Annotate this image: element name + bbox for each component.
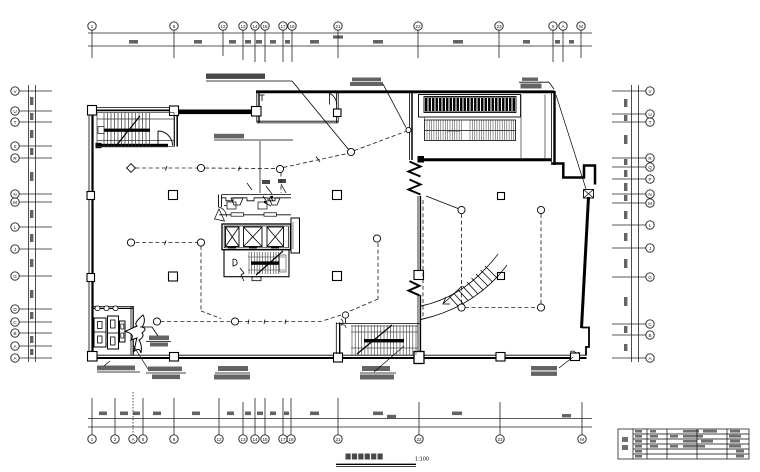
svg-text:A: A [13, 356, 17, 361]
svg-text:C: C [13, 320, 17, 325]
svg-text:6: 6 [173, 437, 176, 442]
svg-text:6: 6 [173, 24, 176, 29]
svg-text:V: V [648, 89, 652, 94]
svg-text:A: A [648, 356, 652, 361]
svg-text:M: M [13, 200, 17, 205]
svg-text:12: 12 [220, 24, 226, 29]
svg-text:T: T [14, 120, 17, 125]
svg-text:22: 22 [415, 24, 421, 29]
svg-text:U: U [648, 112, 651, 117]
svg-text:M: M [648, 201, 652, 206]
svg-text:M: M [580, 437, 584, 442]
svg-text:1:100: 1:100 [415, 457, 429, 463]
svg-text:5: 5 [142, 437, 145, 442]
svg-text:23: 23 [497, 437, 503, 442]
svg-text:15: 15 [262, 24, 268, 29]
svg-text:L: L [14, 225, 17, 230]
svg-text:2: 2 [114, 437, 117, 442]
svg-text:12: 12 [216, 437, 222, 442]
svg-text:B: B [13, 331, 16, 336]
svg-text:P: P [648, 177, 651, 182]
svg-text:21: 21 [335, 24, 341, 29]
svg-text:J: J [649, 246, 651, 251]
svg-text:R: R [13, 156, 17, 161]
svg-text:13: 13 [240, 437, 246, 442]
svg-text:1: 1 [91, 24, 94, 29]
svg-text:Q: Q [648, 165, 652, 170]
svg-text:A: A [13, 344, 17, 349]
svg-text:R: R [648, 156, 652, 161]
svg-text:17: 17 [280, 24, 286, 29]
svg-text:23: 23 [496, 24, 502, 29]
svg-text:22: 22 [416, 437, 422, 442]
svg-text:D: D [13, 307, 17, 312]
svg-text:M: M [579, 24, 583, 29]
svg-text:14: 14 [252, 437, 258, 442]
svg-text:V: V [13, 89, 17, 94]
svg-text:G: G [648, 275, 652, 280]
svg-text:B: B [648, 333, 651, 338]
svg-text:14: 14 [252, 24, 258, 29]
svg-text:18: 18 [289, 24, 295, 29]
svg-text:N: N [648, 192, 651, 197]
svg-text:17: 17 [280, 437, 286, 442]
svg-text:T: T [649, 120, 652, 125]
svg-text:S: S [13, 144, 16, 149]
svg-text:1: 1 [91, 437, 94, 442]
svg-text:L: L [649, 223, 652, 228]
svg-text:U: U [13, 109, 16, 114]
svg-text:C: C [648, 322, 652, 327]
svg-text:15: 15 [262, 437, 268, 442]
svg-text:J: J [14, 247, 16, 252]
svg-text:21: 21 [335, 437, 341, 442]
svg-text:A: A [131, 437, 135, 442]
svg-text:18: 18 [288, 437, 294, 442]
svg-text:X: X [551, 24, 554, 29]
svg-text:N: N [13, 192, 16, 197]
svg-text:G: G [13, 274, 17, 279]
svg-text:13: 13 [240, 24, 246, 29]
svg-text:A: A [561, 24, 565, 29]
